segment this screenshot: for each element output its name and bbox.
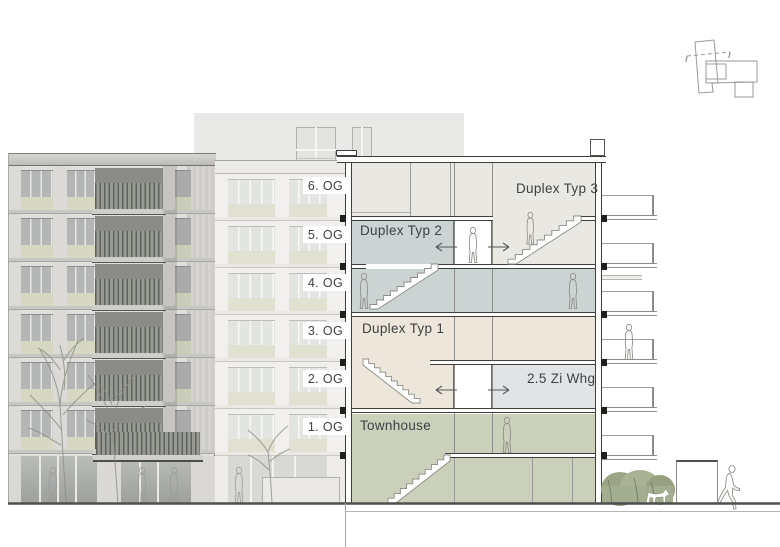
partition-wall [491,221,492,264]
facade-pier [187,166,216,214]
floor-label-4og: 4. OG [303,274,348,291]
floor-label-1og: 1. OG [303,418,348,435]
floor-label-6og: 6. OG [303,177,348,194]
wall-mark [601,407,607,414]
facade-pier [9,358,21,406]
section-cut-wall-right [595,151,602,503]
wall-mark [340,263,346,270]
balcony-post [652,195,654,216]
window-glass [21,170,53,197]
window-glass [228,367,275,392]
window-spandrel [228,298,275,311]
loggia-parapet [602,275,642,280]
facade-pier [215,409,228,456]
window-glass [67,218,95,245]
wall-mark [340,407,346,414]
wall-mark [601,215,607,222]
floor-slab [438,264,595,269]
facade-pier [215,315,228,362]
zone-duplex-typ-3 [493,216,595,264]
balcony-post [652,291,654,312]
window-glass [175,218,191,245]
window-spandrel [289,204,327,217]
facade-pier [215,456,228,503]
wall-mark [340,311,346,318]
balcony-rail [602,435,654,436]
window-glass [175,314,191,341]
unit-label-duplex-typ-3: Duplex Typ 3 [516,181,598,196]
attic-window-transom [296,149,336,151]
facade-pier [215,221,228,268]
balcony-slab [602,311,657,316]
parapet [9,153,216,166]
window-spandrel [289,251,327,264]
window-glass [175,170,191,197]
floor-slab [352,312,595,317]
window-spandrel [228,251,275,264]
wall-mark [601,263,607,270]
window-glass [228,414,275,439]
window-glass [175,266,191,293]
zone-stair-lobby [455,365,491,408]
balcony-slab [92,305,166,311]
drawing-canvas [0,0,780,547]
facade-pier [97,456,121,503]
balcony-slab [92,401,166,407]
wall-mark [340,359,346,366]
window-spandrel [228,439,275,452]
facade-pier [215,268,228,315]
balcony-rail [602,387,654,388]
window-spandrel [289,439,327,452]
window-glass [67,266,95,293]
balcony-recess [95,360,163,375]
wall-mark [601,452,607,459]
facade-pier [53,262,67,310]
balcony-slab [92,353,166,359]
storefront-mullion [57,456,59,503]
facade-pier [53,310,67,358]
window-spandrel [21,197,53,210]
window-spandrel [21,389,53,402]
balcony-slab [602,263,657,268]
window-spandrel [175,341,191,354]
window-glass [228,273,275,298]
architectural-section-drawing: 6. OG 5. OG 4. OG 3. OG 2. OG 1. OG Dupl… [0,0,780,547]
zone-duplex-typ-2 [352,269,595,312]
balcony-railing [96,432,200,455]
left-building-elevation [8,153,215,503]
floor-label-2og: 2. OG [303,370,348,387]
facade-pier [275,268,289,315]
balcony-slab [92,209,166,215]
facade-pier [9,166,21,214]
facade-pier [53,166,67,214]
balcony-post [652,243,654,264]
facade-pier [191,456,216,503]
window-spandrel [21,245,53,258]
window-glass [175,362,191,389]
floor-slab [445,453,595,458]
balcony-slab [602,407,657,412]
balcony-rail [602,291,654,292]
window-glass [21,314,53,341]
window-glass [21,362,53,389]
balcony-rail [602,243,654,244]
facade-pier [275,174,289,221]
balcony-post [652,387,654,408]
partition-wall [352,212,410,213]
floor-slab [352,264,366,269]
facade-pier [9,214,21,262]
facade-pier [275,315,289,362]
zone-stair-lobby [455,221,491,264]
storefront-mullion [75,456,77,503]
balcony-railing [95,279,163,305]
facade-shadow [163,166,177,454]
entry-box [262,477,340,503]
parapet [215,160,345,174]
facade-pier [215,174,228,221]
balcony-slab [602,455,657,460]
floor-label-3og: 3. OG [303,322,348,339]
window-spandrel [175,293,191,306]
window-spandrel [175,197,191,210]
balcony-slab [602,359,657,364]
window-spandrel [67,437,95,450]
roof-parapet-stub [590,139,605,156]
window-spandrel [21,437,53,450]
unit-label-townhouse: Townhouse [360,418,431,433]
wall-mark [340,215,346,222]
unit-label-duplex-typ-1: Duplex Typ 1 [362,321,444,336]
unit-label-zi-whg: 2.5 Zi Whg [527,371,595,386]
storefront-mullion [39,456,41,503]
window-spandrel [67,341,95,354]
balcony-post [652,339,654,360]
wall-mark [340,452,346,459]
window-spandrel [67,293,95,306]
balcony-recess [95,408,163,423]
window-spandrel [228,345,275,358]
roof-slab [337,156,606,163]
attic-window-sill [296,158,336,159]
partition-wall [532,458,533,503]
window-glass [228,179,275,204]
balcony-rail [602,339,654,340]
balcony-railing [95,183,163,209]
balcony-railing [95,327,163,353]
partition-wall [572,458,573,503]
wall-mark [601,359,607,366]
balcony-recess [95,216,163,231]
facade-pier [53,358,67,406]
window-spandrel [21,341,53,354]
window-spandrel [67,197,95,210]
shelter-structure [676,460,718,503]
window-glass [67,362,95,389]
facade-pier [9,262,21,310]
facade-pier [187,262,216,310]
facade-pier [275,221,289,268]
storefront-mullion [139,456,141,503]
partition-wall [491,365,492,408]
floor-label-5og: 5. OG [303,226,348,243]
window-spandrel [67,245,95,258]
window-spandrel [228,204,275,217]
unit-label-duplex-typ-2: Duplex Typ 2 [360,223,442,238]
window-spandrel [67,389,95,402]
floor-slab [430,360,595,365]
window-spandrel [289,392,327,405]
window-spandrel [175,245,191,258]
balcony-railing [95,375,163,401]
window-glass [228,320,275,345]
window-spandrel [289,345,327,358]
wall-mark [601,311,607,318]
balcony-post [652,435,654,456]
facade-pier [275,409,289,456]
facade-pier [187,310,216,358]
facade-pier [187,358,216,406]
balcony-rail [602,195,654,196]
window-glass [21,410,53,437]
window-glass [228,226,275,251]
zone-duplex-typ-1 [352,365,453,408]
facade-pier [9,310,21,358]
storefront-mullion [157,456,159,503]
window-spandrel [21,293,53,306]
facade-pier [9,456,21,503]
window-spandrel [289,298,327,311]
floor-slab [346,408,602,413]
window-spandrel [228,392,275,405]
facade-pier [187,214,216,262]
facade-pier [53,214,67,262]
balcony-slab [92,257,166,263]
partition-wall [454,458,455,503]
balcony-railing [95,231,163,257]
storefront-mullion [250,456,252,503]
window-glass [67,410,95,437]
facade-pier [215,362,228,409]
partition-wall [450,163,451,216]
window-glass [67,314,95,341]
window-glass [21,266,53,293]
window-spandrel [175,389,191,402]
window-glass [21,218,53,245]
partition-wall [410,163,411,216]
floor-slab [352,216,493,221]
balcony-recess [95,312,163,327]
window-glass [67,170,95,197]
balcony-slab [602,215,657,220]
balcony-slab [93,455,203,462]
partition-wall [453,365,454,408]
balcony-recess [95,168,163,183]
facade-pier [275,362,289,409]
facade-pier [53,406,67,454]
facade-pier [9,406,21,454]
partition-wall [453,221,454,264]
balcony-recess [95,264,163,279]
